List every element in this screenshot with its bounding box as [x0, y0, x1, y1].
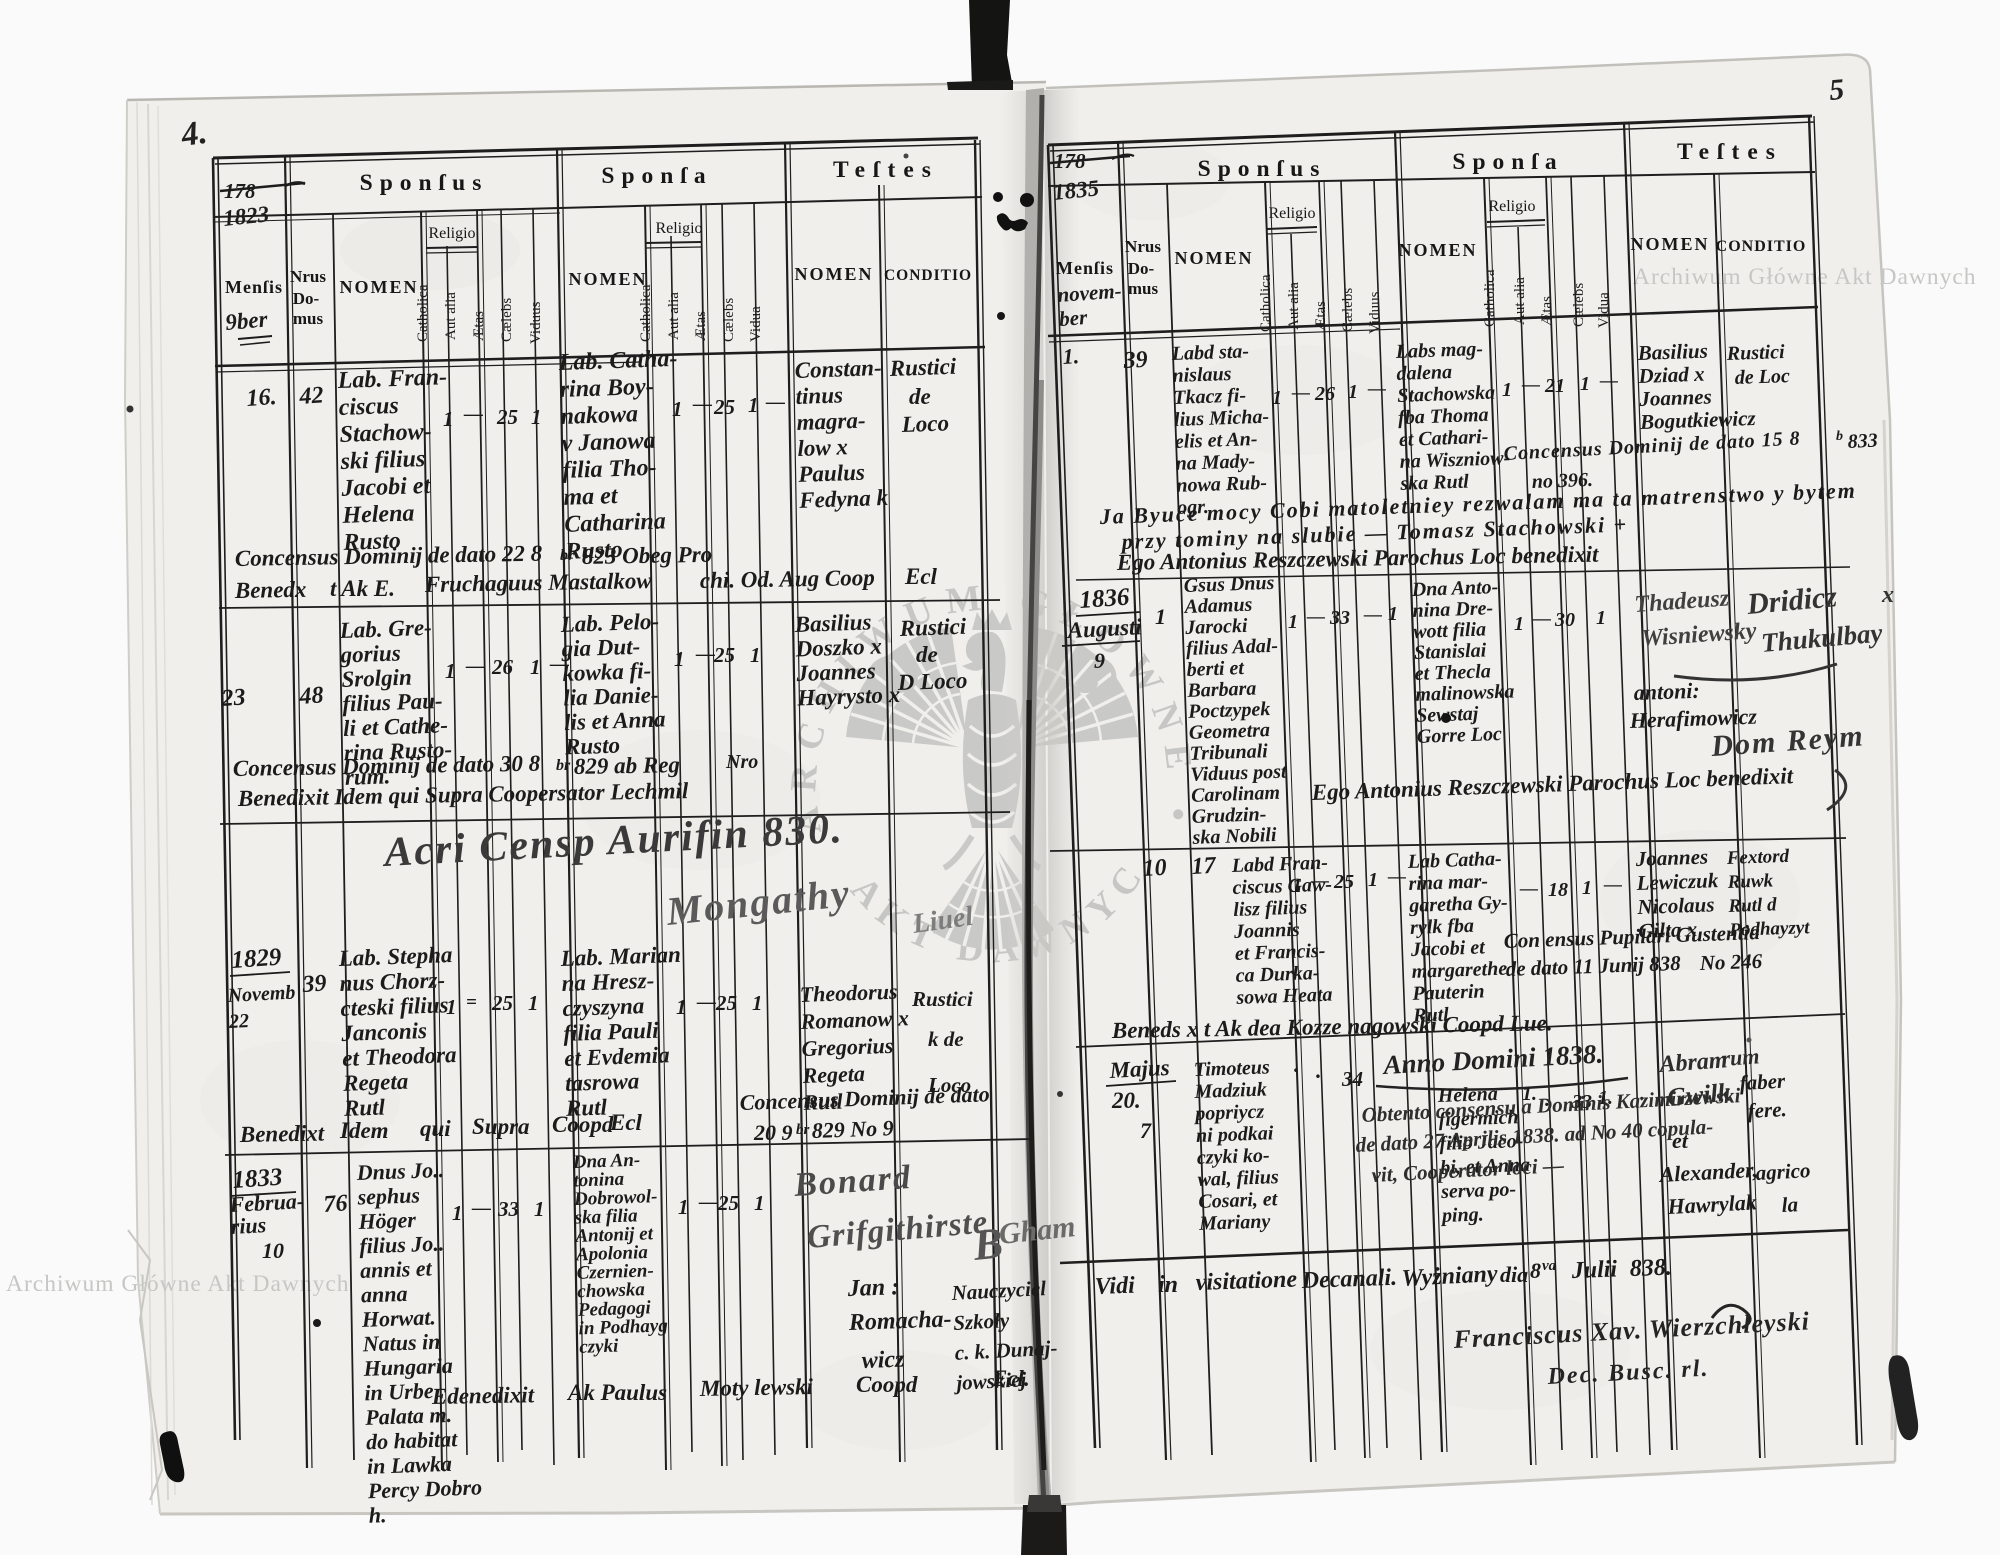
svg-text:34: 34	[1341, 1067, 1363, 1091]
svg-text:1: 1	[534, 1197, 545, 1221]
svg-text:—: —	[1310, 870, 1329, 890]
svg-text:=: =	[466, 992, 477, 1013]
svg-text:25: 25	[1333, 871, 1354, 893]
svg-text:fere.: fere.	[1747, 1097, 1787, 1123]
svg-text:Viduus: Viduus	[528, 301, 544, 344]
svg-text:1.: 1.	[1062, 343, 1080, 369]
svg-text:76: 76	[323, 1190, 349, 1218]
svg-text:1: 1	[1272, 387, 1282, 409]
svg-text:Aut alia: Aut alia	[1512, 277, 1528, 325]
svg-text:CONDITIO: CONDITIO	[884, 267, 972, 284]
svg-text:Catholica: Catholica	[415, 284, 431, 342]
svg-text:Rustici: Rustici	[1725, 341, 1785, 365]
svg-text:1: 1	[750, 643, 761, 667]
svg-text:Cælebs: Cælebs	[499, 298, 515, 342]
svg-text:Abram: Abram	[1657, 1047, 1729, 1078]
svg-text:—: —	[1306, 606, 1325, 626]
svg-text:1: 1	[530, 655, 541, 679]
svg-text:1: 1	[445, 659, 456, 683]
svg-text:mus: mus	[1128, 279, 1159, 298]
svg-text:Benedixt: Benedixt	[239, 1121, 325, 1147]
svg-text:1: 1	[672, 397, 683, 421]
svg-text:Vidua: Vidua	[1596, 292, 1612, 328]
svg-text:agrico: agrico	[1755, 1158, 1811, 1185]
svg-text:faber: faber	[1739, 1069, 1787, 1095]
svg-text:18: 18	[1548, 879, 1568, 901]
svg-text:8: 8	[1530, 1258, 1541, 1283]
svg-text:in: in	[1158, 1272, 1178, 1298]
svg-text:1: 1	[1155, 604, 1166, 629]
svg-text:17: 17	[1191, 853, 1217, 880]
svg-text:1: 1	[752, 991, 763, 1015]
svg-text:48: 48	[298, 682, 325, 710]
svg-text:Aut alia: Aut alia	[443, 292, 459, 340]
svg-text:25: 25	[491, 991, 513, 1015]
svg-text:1: 1	[1288, 611, 1298, 633]
svg-text:rum: rum	[1721, 1043, 1761, 1071]
svg-text:Ætas: Ætas	[1539, 296, 1555, 326]
svg-text:Cælebs: Cælebs	[1340, 288, 1356, 332]
svg-text:829 No 9: 829 No 9	[811, 1115, 894, 1143]
svg-text:9ber: 9ber	[224, 306, 269, 335]
svg-text:br: br	[796, 1122, 810, 1138]
svg-text:5: 5	[1828, 73, 1846, 107]
svg-text:1835: 1835	[1052, 175, 1100, 205]
svg-text:42: 42	[298, 382, 325, 410]
svg-text:1: 1	[678, 1195, 689, 1219]
svg-text:33: 33	[497, 1197, 519, 1221]
svg-text:Teſtes: Teſtes	[833, 157, 939, 183]
svg-text:Rustici: Rustici	[888, 354, 957, 381]
svg-text:Ecl: Ecl	[609, 1110, 643, 1135]
svg-text:Religio: Religio	[428, 225, 475, 242]
svg-text:Nrus: Nrus	[1125, 237, 1161, 256]
svg-text:1: 1	[674, 647, 685, 671]
svg-text:Ecl: Ecl	[904, 564, 938, 589]
svg-text:25: 25	[713, 395, 735, 419]
svg-text:—: —	[463, 404, 483, 425]
svg-text:823 Obeg Pro: 823 Obeg Pro	[582, 542, 713, 569]
svg-text:—: —	[1603, 874, 1622, 894]
svg-text:1: 1	[1580, 373, 1590, 395]
svg-text:1823: 1823	[222, 201, 270, 231]
svg-text:1829: 1829	[231, 944, 283, 974]
svg-text:dia: dia	[1500, 1262, 1528, 1287]
svg-text:4.: 4.	[178, 114, 209, 154]
svg-text:—: —	[1387, 866, 1406, 886]
svg-text:—: —	[692, 394, 712, 415]
svg-text:—: —	[1291, 382, 1310, 402]
svg-text:NOMEN: NOMEN	[1631, 234, 1710, 254]
svg-text:qui: qui	[420, 1116, 451, 1141]
svg-text:Aut alia: Aut alia	[1286, 282, 1302, 330]
svg-text:—: —	[1367, 378, 1386, 398]
svg-text:Catholica: Catholica	[638, 284, 654, 342]
svg-text:.: .	[1316, 1058, 1322, 1083]
svg-text:Menſis: Menſis	[225, 277, 283, 297]
svg-text:br: br	[560, 547, 575, 564]
svg-text:Viduus: Viduus	[1367, 291, 1383, 334]
svg-text:Ak Paulus: Ak Paulus	[566, 1380, 667, 1405]
svg-text:33: 33	[1329, 607, 1350, 629]
svg-text:1: 1	[1502, 379, 1512, 401]
svg-text:Ætas: Ætas	[1313, 301, 1329, 331]
svg-text:25: 25	[715, 991, 737, 1015]
svg-text:chi. Od. Aug Coop: chi. Od. Aug Coop	[700, 565, 875, 593]
svg-text:Coopd: Coopd	[552, 1112, 614, 1137]
svg-text:—: —	[695, 644, 715, 665]
svg-text:Wyżniany: Wyżniany	[1401, 1261, 1499, 1292]
svg-text:Teſtes: Teſtes	[1677, 139, 1783, 165]
svg-text:Majus: Majus	[1108, 1055, 1170, 1083]
svg-text:Religio: Religio	[655, 220, 702, 237]
svg-text:—: —	[698, 1192, 718, 1213]
svg-text:No 246: No 246	[1698, 949, 1763, 975]
svg-text:Julii: Julii	[1570, 1256, 1618, 1284]
svg-text:39: 39	[301, 970, 328, 998]
svg-text:1: 1	[1292, 875, 1302, 897]
svg-text:mus: mus	[293, 309, 324, 328]
svg-text:10: 10	[262, 1238, 284, 1263]
svg-text:Benedx: Benedx	[234, 577, 307, 603]
svg-text:—: —	[465, 656, 485, 677]
svg-text:1: 1	[748, 393, 759, 417]
svg-text:Cælebs: Cælebs	[1571, 283, 1587, 327]
svg-text:Aut alia: Aut alia	[666, 292, 682, 340]
svg-text:7: 7	[1140, 1118, 1152, 1143]
svg-text:NOMEN: NOMEN	[1175, 248, 1254, 268]
svg-text:Supra: Supra	[472, 1114, 530, 1139]
svg-text:1: 1	[1582, 877, 1592, 899]
svg-text:1: 1	[443, 407, 454, 431]
svg-text:—: —	[1532, 608, 1551, 628]
svg-text:Vidi: Vidi	[1094, 1273, 1135, 1300]
svg-text:—: —	[765, 392, 785, 413]
svg-text:Catholica: Catholica	[1258, 274, 1274, 332]
svg-text:23: 23	[220, 684, 247, 712]
svg-text:Rustici: Rustici	[898, 614, 967, 641]
svg-text:NOMEN: NOMEN	[569, 269, 648, 289]
svg-text:k de: k de	[928, 1027, 964, 1051]
svg-text:1: 1	[531, 405, 542, 429]
svg-text:Sponſus: Sponſus	[360, 170, 489, 196]
svg-text:b: b	[1836, 429, 1843, 444]
svg-text:25: 25	[717, 1191, 739, 1215]
svg-text:—: —	[696, 992, 716, 1013]
svg-text:Coopd: Coopd	[856, 1372, 918, 1397]
svg-text:de Loc: de Loc	[1734, 365, 1790, 389]
svg-text:—: —	[1599, 370, 1618, 390]
svg-text:1: 1	[1388, 603, 1398, 625]
svg-text:NOMEN: NOMEN	[340, 277, 419, 297]
svg-text:Decanali.: Decanali.	[1300, 1265, 1397, 1294]
svg-text:Sponſus: Sponſus	[1198, 156, 1327, 182]
svg-text:visitatione: visitatione	[1195, 1266, 1298, 1296]
svg-text:NOMEN: NOMEN	[795, 264, 874, 284]
svg-text:CONDITIO: CONDITIO	[1716, 238, 1807, 255]
svg-text:1: 1	[1514, 613, 1524, 635]
svg-text:Nrus: Nrus	[290, 267, 326, 286]
svg-text:Moty lewski: Moty lewski	[699, 1374, 814, 1401]
svg-text:838.: 838.	[1629, 1255, 1672, 1282]
svg-text:—: —	[1521, 374, 1540, 394]
svg-text:26: 26	[491, 655, 514, 679]
svg-text:833: 833	[1847, 429, 1878, 453]
svg-text:Hawrylak: Hawrylak	[1666, 1189, 1757, 1219]
svg-text:Menſis: Menſis	[1056, 258, 1114, 278]
svg-text:1: 1	[1368, 869, 1378, 891]
svg-text:16.: 16.	[246, 384, 278, 412]
svg-text:x: x	[1881, 582, 1894, 608]
svg-text:t Ak E.: t Ak E.	[330, 576, 395, 601]
svg-text:10: 10	[1142, 855, 1167, 882]
svg-text:1: 1	[452, 1201, 463, 1225]
svg-text:Sponſa: Sponſa	[1452, 149, 1563, 175]
svg-text:25: 25	[496, 405, 518, 429]
svg-text:Augusti: Augusti	[1065, 614, 1143, 643]
svg-text:D Loco: D Loco	[896, 668, 967, 695]
svg-text:26: 26	[1314, 383, 1335, 405]
svg-text:30: 30	[1554, 609, 1575, 631]
svg-text:de: de	[909, 384, 931, 409]
svg-text:20 9: 20 9	[753, 1120, 793, 1145]
svg-text:Nro: Nro	[725, 751, 758, 773]
svg-text:Vidua: Vidua	[748, 306, 764, 342]
svg-text:39: 39	[1122, 347, 1148, 374]
svg-text:va: va	[1542, 1258, 1557, 1274]
svg-text:Cælebs: Cælebs	[721, 298, 737, 342]
svg-text:—: —	[471, 1198, 491, 1219]
svg-text:1: 1	[1596, 607, 1606, 629]
svg-text:829 ab Reg: 829 ab Reg	[574, 752, 680, 779]
svg-text:wicz: wicz	[861, 1347, 905, 1374]
svg-text:.: .	[1294, 1052, 1300, 1077]
svg-text:—: —	[1519, 878, 1538, 898]
svg-text:9: 9	[1094, 648, 1105, 673]
svg-text:de: de	[916, 642, 938, 667]
svg-text:Archiwum Główne Akt Dawnych: Archiwum Główne Akt Dawnych	[1633, 264, 1977, 290]
svg-text:antoni:: antoni:	[1633, 678, 1700, 705]
svg-text:Archiwum Główne Akt Dawnych: Archiwum Główne Akt Dawnych	[6, 1271, 350, 1297]
svg-text:Ecl.: Ecl.	[991, 1366, 1030, 1391]
svg-text:—: —	[1363, 604, 1382, 624]
svg-text:br: br	[556, 757, 571, 774]
svg-text:Rustici: Rustici	[911, 987, 973, 1011]
svg-text:Ætas: Ætas	[471, 311, 487, 341]
svg-text:Religio: Religio	[1268, 205, 1315, 222]
svg-text:1: 1	[676, 995, 687, 1019]
svg-text:Loco: Loco	[900, 410, 949, 437]
svg-text:Ætas: Ætas	[693, 311, 709, 341]
svg-text:NOMEN: NOMEN	[1399, 240, 1478, 260]
svg-text:Fruchaguus Mastalkow: Fruchaguus Mastalkow	[424, 568, 653, 597]
svg-text:Edenedixit: Edenedixit	[431, 1382, 535, 1409]
svg-text:1: 1	[1348, 381, 1358, 403]
svg-text:1: 1	[446, 995, 457, 1019]
svg-text:Catholica: Catholica	[1482, 269, 1498, 327]
svg-text:Do-: Do-	[293, 289, 320, 308]
svg-text:Idem: Idem	[339, 1118, 389, 1143]
svg-text:Alexander,: Alexander,	[1657, 1157, 1759, 1187]
svg-text:25: 25	[713, 643, 735, 667]
svg-text:Religio: Religio	[1488, 198, 1535, 215]
svg-text:20.: 20.	[1111, 1088, 1141, 1113]
svg-text:Do-: Do-	[1128, 259, 1155, 278]
svg-text:1836: 1836	[1079, 584, 1131, 614]
svg-text:la: la	[1781, 1192, 1799, 1217]
svg-text:21: 21	[1544, 375, 1565, 397]
svg-text:Sponſa: Sponſa	[601, 163, 712, 189]
svg-text:1: 1	[528, 991, 539, 1015]
svg-text:1: 1	[754, 1191, 765, 1215]
